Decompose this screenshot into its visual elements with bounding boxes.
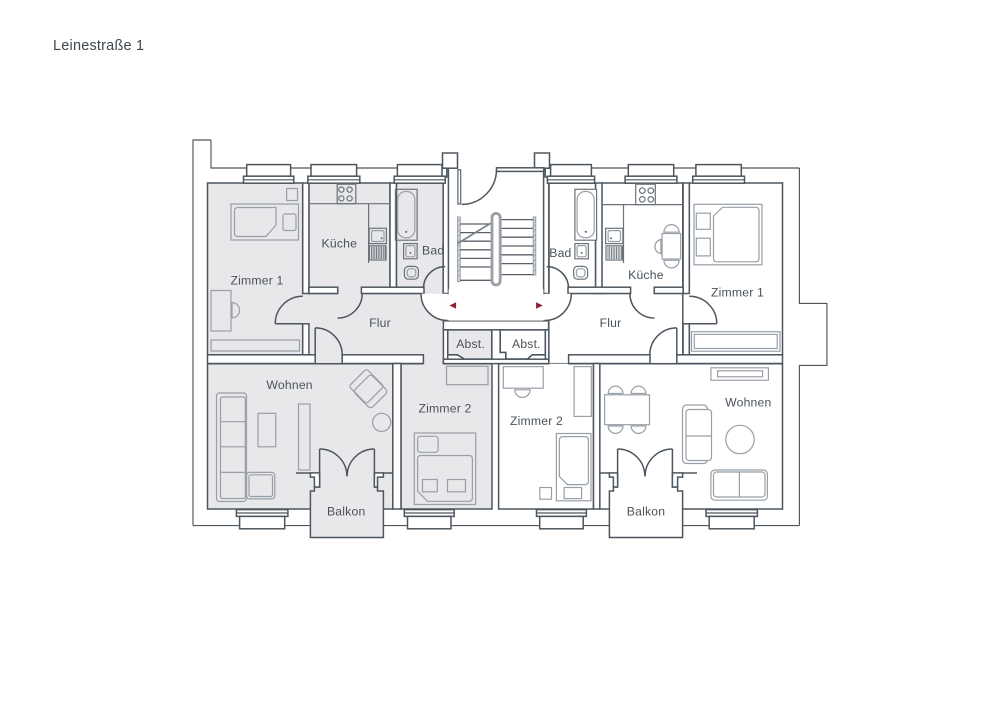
svg-text:Wohnen: Wohnen — [725, 396, 771, 410]
svg-text:Bad: Bad — [549, 246, 571, 260]
svg-text:Wohnen: Wohnen — [266, 378, 312, 392]
svg-text:Zimmer 1: Zimmer 1 — [711, 286, 764, 300]
svg-text:Flur: Flur — [369, 316, 391, 330]
svg-text:Zimmer 2: Zimmer 2 — [418, 402, 471, 416]
svg-text:Zimmer 1: Zimmer 1 — [230, 274, 283, 288]
svg-text:Bad: Bad — [422, 244, 444, 258]
svg-text:Leinestraße 1: Leinestraße 1 — [53, 38, 144, 54]
svg-text:Abst.: Abst. — [512, 337, 541, 351]
svg-text:Küche: Küche — [628, 268, 664, 282]
svg-text:Flur: Flur — [600, 316, 622, 330]
svg-text:Abst.: Abst. — [456, 337, 485, 351]
svg-text:Balkon: Balkon — [327, 505, 365, 519]
svg-text:Küche: Küche — [322, 237, 358, 251]
svg-text:Zimmer 2: Zimmer 2 — [510, 414, 563, 428]
svg-text:Balkon: Balkon — [627, 505, 665, 519]
